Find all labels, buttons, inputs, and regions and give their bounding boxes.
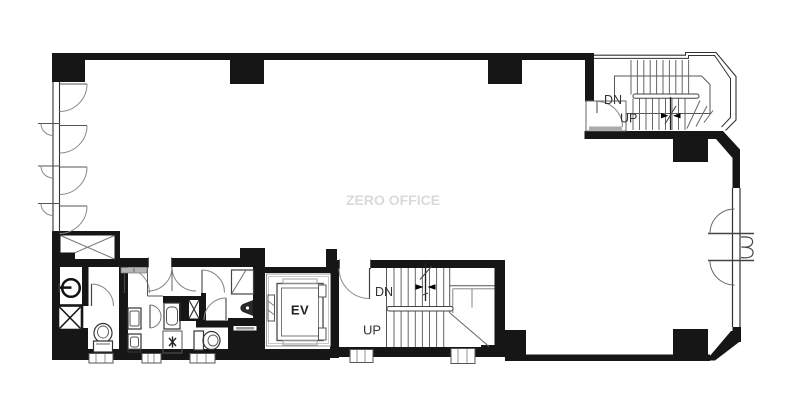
- svg-text:UP: UP: [620, 112, 637, 126]
- svg-text:ZERO OFFICE: ZERO OFFICE: [346, 192, 440, 208]
- svg-text:UP: UP: [363, 323, 381, 338]
- svg-text:DN: DN: [604, 93, 622, 107]
- svg-text:DN: DN: [375, 285, 393, 299]
- svg-text:EV: EV: [291, 303, 309, 318]
